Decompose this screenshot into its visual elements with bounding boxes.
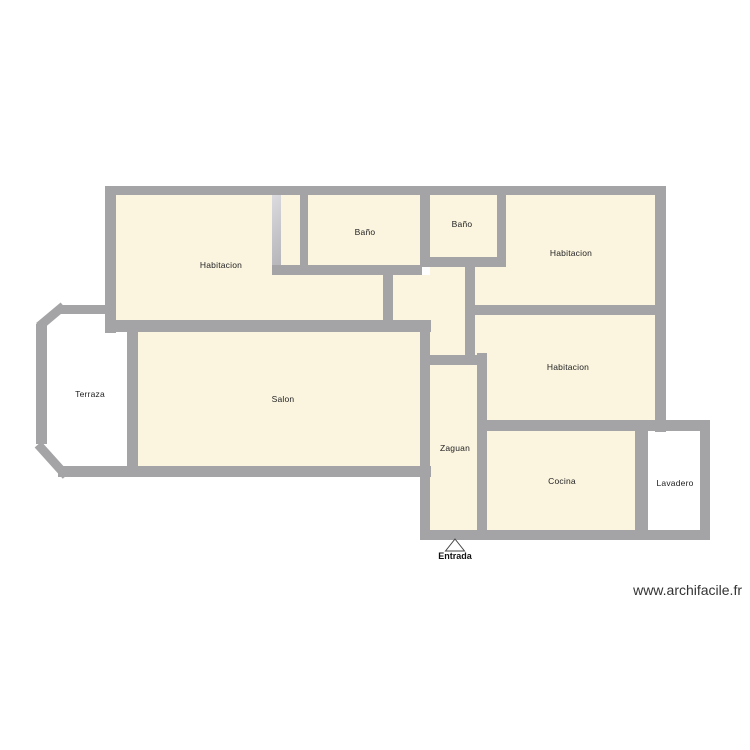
room-label-bano-2: Baño xyxy=(452,219,473,229)
wall-segment-bano1-bottom xyxy=(272,265,422,275)
wall-segment-bano2-right xyxy=(497,195,506,257)
wall-segment-terraza-chamfer-top xyxy=(36,302,66,329)
room-label-lavadero: Lavadero xyxy=(656,478,693,488)
room-label-terraza: Terraza xyxy=(75,389,105,399)
room-fill-habitacion-right-top-ext xyxy=(475,267,505,305)
room-label-habitacion-left: Habitacion xyxy=(200,260,242,270)
wall-segment-bano-divider xyxy=(420,195,430,257)
entrance-label: Entrada xyxy=(438,551,472,561)
floor-plan: Habitacion Baño Baño Habitacion Habitaci… xyxy=(0,0,750,750)
room-fill-habitacion-left-ext xyxy=(273,275,383,320)
wall-segment-terraza-chamfer-bottom xyxy=(35,441,70,478)
wall-segment-zaguan-right xyxy=(477,353,487,540)
room-fill-hall-vertical xyxy=(430,267,465,355)
room-label-habitacion-right-top: Habitacion xyxy=(550,248,592,258)
watermark-text: www.archifacile.fr xyxy=(633,582,742,598)
wall-segment-habitaciones-divider xyxy=(465,305,666,315)
room-fill-closet-sliver xyxy=(281,195,300,265)
wall-segment-lavadero-right xyxy=(700,420,710,540)
room-label-habitacion-right-middle: Habitacion xyxy=(547,362,589,372)
entrance-triangle-icon xyxy=(444,538,466,552)
wall-segment-bano1-left xyxy=(300,195,308,265)
room-label-salon: Salon xyxy=(272,394,295,404)
wall-segment-terraza-left xyxy=(36,324,47,444)
wall-segment-cocina-lavadero-top xyxy=(477,420,710,431)
wall-segment-hall-left xyxy=(383,273,393,322)
wall-segment-cocina-right xyxy=(635,420,648,540)
wall-segment-bano2-bottom xyxy=(420,257,506,267)
wall-segment-top-outer xyxy=(105,186,666,195)
wall-segment-closet-partition xyxy=(272,195,281,273)
wall-segment-zaguan-left xyxy=(420,320,430,540)
wall-segment-salon-left xyxy=(127,332,138,470)
wall-segment-salon-top xyxy=(115,320,431,332)
room-label-cocina: Cocina xyxy=(548,476,576,486)
wall-segment-salon-terraza-bottom xyxy=(58,466,431,477)
room-label-bano-1: Baño xyxy=(355,227,376,237)
room-label-zaguan: Zaguan xyxy=(440,443,470,453)
room-fill-habitacion-left xyxy=(115,195,273,320)
